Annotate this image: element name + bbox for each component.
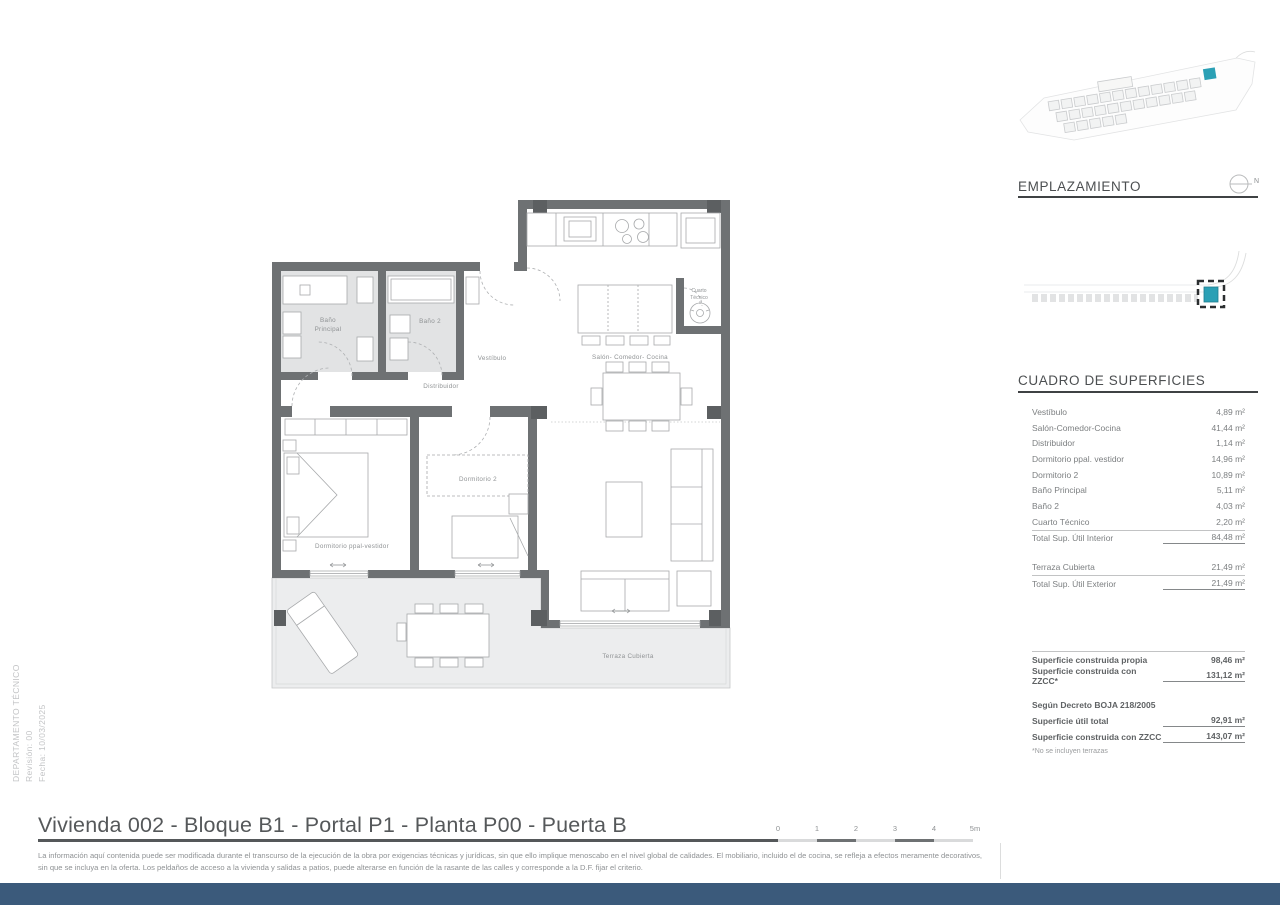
scale-bar-segment [817,839,856,842]
room-label-bano-principal-2: Principal [315,326,342,333]
department-label: DEPARTAMENTO TÉCNICO [10,632,23,782]
table-row: Terraza Cubierta21,49 m² [1032,559,1245,575]
emplazamiento-rule [1018,196,1258,198]
room-label-salon: Salón- Comedor- Cocina [592,354,668,361]
scale-label: 4 [924,824,944,833]
kitchen-counter [527,213,720,248]
table-row: Distribuidor1,14 m² [1032,435,1245,451]
scale-bar-segment [934,839,973,842]
table-row: Dormitorio ppal. vestidor14,96 m² [1032,451,1245,467]
site-terrain-outline [1020,58,1255,140]
room-label-dormitorio-ppal: Dormitorio ppal-vestidor [315,543,389,550]
site-plan-image [1012,235,1262,335]
title-underline [38,839,778,842]
footer-divider [1000,843,1001,879]
room-label-bano2: Baño 2 [419,318,441,325]
room-label-cuarto-tecnico-1: Cuarto [691,288,706,294]
scale-bar-segment [856,839,895,842]
surfaces-table: Vestíbulo4,89 m² Salón-Comedor-Cocina41,… [1032,404,1245,592]
scale-label: 5m [965,824,985,833]
room-label-distribuidor: Distribuidor [423,383,458,390]
dining-table [591,362,692,431]
table-row: Vestíbulo4,89 m² [1032,404,1245,420]
room-label-terraza: Terraza Cubierta [602,653,654,660]
footer-bar [0,883,1280,905]
exterior-total-row: Total Sup. Útil Exterior21,49 m² [1032,576,1245,592]
highlighted-unit-3d [1203,67,1217,80]
room-label-vestibulo: Vestíbulo [478,355,507,362]
decree-row: Superficie útil total92,91 m² [1032,713,1245,729]
scale-label: 2 [846,824,866,833]
table-row: Dormitorio 210,89 m² [1032,467,1245,483]
technical-department-info: DEPARTAMENTO TÉCNICO Revisión: 00 Fecha:… [10,632,49,782]
room-label-dormitorio2: Dormitorio 2 [459,476,497,483]
table-footnote: *No se incluyen terrazas [1032,748,1245,755]
room-label-cuarto-tecnico-2: Técnico [690,295,708,301]
built-surface-table: Superficie construida propia98,46 m² Sup… [1032,651,1245,755]
table-row: Cuarto Técnico2,20 m² [1032,514,1245,530]
table-row: Salón-Comedor-Cocina41,44 m² [1032,420,1245,436]
washing-machine [690,301,710,323]
surfaces-title: CUADRO DE SUPERFICIES [1018,373,1205,388]
scale-label: 1 [807,824,827,833]
room-label-bano-principal-1: Baño [320,317,336,324]
scale-label: 3 [885,824,905,833]
interior-total-row: Total Sup. Útil Interior84,48 m² [1032,531,1245,547]
kitchen-island [578,285,672,345]
revision-label: Revisión: 00 [23,632,36,782]
date-label: Fecha: 10/03/2025 [36,632,49,782]
table-row: Baño Principal5,11 m² [1032,482,1245,498]
surfaces-rule [1018,391,1258,393]
scale-label: 0 [768,824,788,833]
decree-header-row: Según Decreto BOJA 218/2005 [1032,697,1245,713]
scale-bar-segment [778,839,817,842]
north-compass-icon: N [1226,171,1262,197]
decree-row: Superficie construida con ZZCC143,07 m² [1032,729,1245,745]
bedroom2-furniture [427,455,528,558]
built-row: Superficie construida con ZZCC*131,12 m² [1032,668,1245,684]
scale-bar-segment [895,839,934,842]
emplazamiento-title: EMPLAZAMIENTO [1018,179,1141,194]
master-bedroom-furniture [283,419,407,551]
legal-disclaimer: La información aquí contenida puede ser … [38,850,982,873]
table-row: Baño 24,03 m² [1032,498,1245,514]
sofa-set [581,449,713,611]
access-road [1236,51,1255,58]
highlighted-unit-plan [1204,287,1218,302]
aerial-view-image [1012,22,1262,172]
sheet-title: Vivienda 002 - Bloque B1 - Portal P1 - P… [38,813,627,838]
north-label: N [1254,178,1259,185]
floor-plan: Baño Principal Baño 2 Vestíbulo Salón- C… [265,195,735,695]
